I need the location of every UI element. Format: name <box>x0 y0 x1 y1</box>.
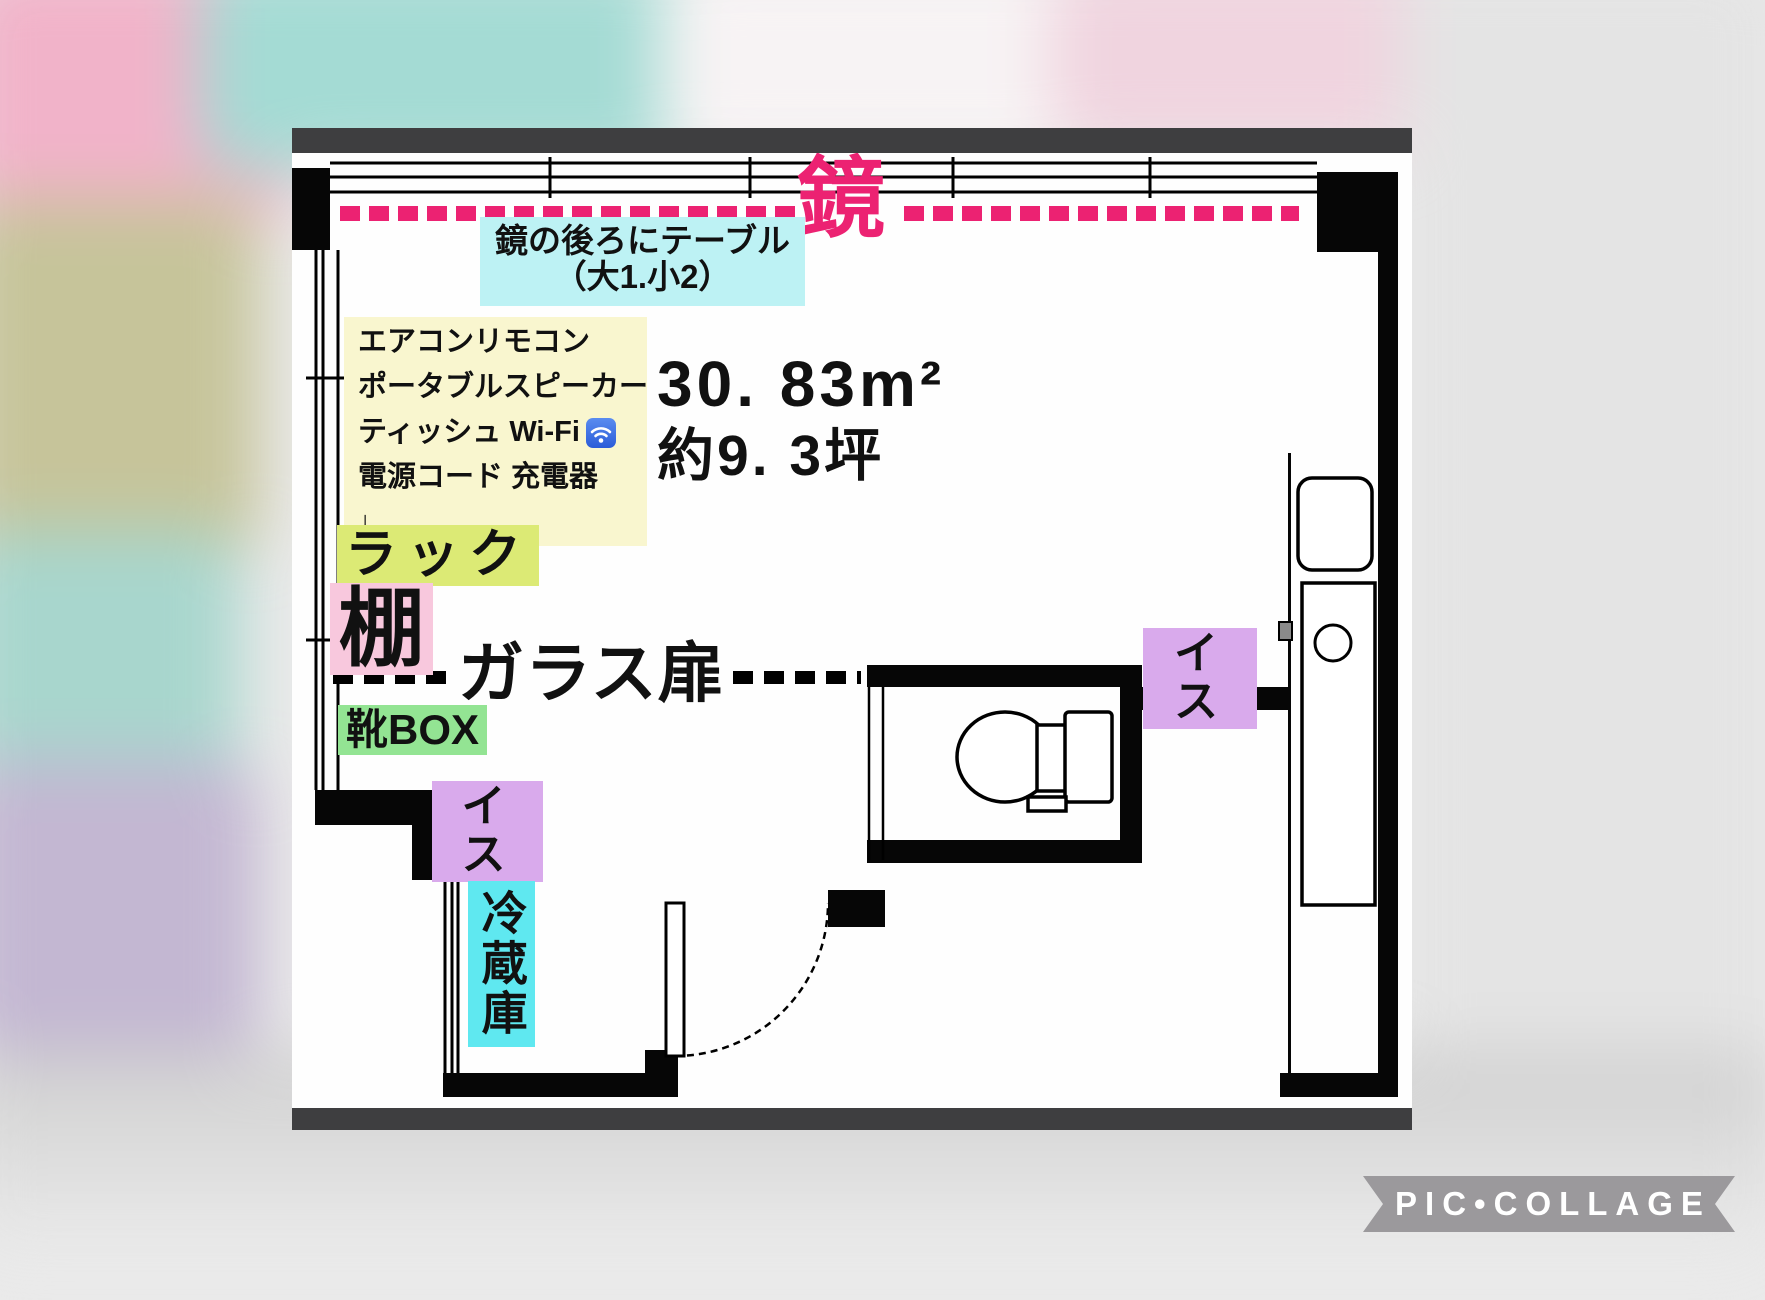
wifi-icon <box>586 418 616 448</box>
wall-top-left-corner <box>292 168 330 250</box>
mirror-note-line2: （大1.小2） <box>490 259 795 295</box>
mirror-label: 鏡 <box>797 153 885 248</box>
amenity-line: ポータブルスピーカー <box>358 372 633 404</box>
toilet-icon <box>957 712 1112 811</box>
amenity-line-wifi: ティッシュ Wi-Fi <box>358 417 580 449</box>
floorplan-photo: 鏡 鏡の後ろにテーブル （大1.小2） エアコンリモコン ポータブルスピーカー … <box>292 128 1412 1130</box>
floorplan: 鏡 鏡の後ろにテーブル （大1.小2） エアコンリモコン ポータブルスピーカー … <box>292 153 1412 1108</box>
wall-right-of-entry <box>828 890 885 927</box>
amenity-line: エアコンリモコン <box>358 327 633 359</box>
photo-frame-bottom <box>292 1108 1412 1130</box>
wall-step-horizontal <box>315 790 412 825</box>
wall-toilet-bottom <box>867 840 1142 863</box>
glass-door-dash-right <box>733 671 861 684</box>
kitchen-sink-icon <box>1298 478 1375 905</box>
bg-blob-lavender-left <box>0 760 260 1060</box>
wall-toilet-top <box>867 665 1142 687</box>
mirror-dash-right <box>904 206 1299 221</box>
wall-toilet-right <box>1120 665 1142 863</box>
wall-bottom-right <box>1280 1073 1398 1097</box>
label-shelf: 棚 <box>330 583 433 675</box>
label-fridge: 冷蔵庫 <box>468 881 535 1047</box>
mirror-note: 鏡の後ろにテーブル （大1.小2） <box>480 217 805 306</box>
bg-blob-khaki-left <box>0 200 260 560</box>
window-band-entry <box>445 880 458 1073</box>
pic-collage-watermark-text: PIC•COLLAGE <box>1387 1185 1711 1223</box>
pic-collage-watermark: PIC•COLLAGE <box>1363 1176 1735 1232</box>
photo-frame-top <box>292 128 1412 153</box>
label-glass-door: ガラス扉 <box>458 637 725 710</box>
wall-entry-bottom <box>443 1073 676 1097</box>
wall-top-right-corner <box>1317 172 1398 252</box>
label-rack: ラック <box>337 525 539 586</box>
wall-counter-edge <box>1288 453 1291 1073</box>
wall-entry-door-post <box>645 1050 678 1097</box>
toilet-door <box>869 687 883 860</box>
amenities-box: エアコンリモコン ポータブルスピーカー ティッシュ Wi-Fi 電源コード 充電… <box>344 317 647 546</box>
label-chair-left: イス <box>432 781 543 882</box>
amenity-line: 電源コード 充電器 <box>358 462 633 494</box>
bg-blob-teal-left <box>0 530 240 790</box>
wall-right <box>1378 248 1398 1097</box>
label-chair-right: イス <box>1143 628 1257 729</box>
area-tsubo: 約9. 3坪 <box>657 425 884 488</box>
amenity-line: ティッシュ Wi-Fi <box>358 417 633 449</box>
mirror-note-line1: 鏡の後ろにテーブル <box>490 223 795 259</box>
area-square-meters: 30. 83m² <box>657 349 945 419</box>
entry-door <box>666 903 828 1056</box>
label-shoe-box: 靴BOX <box>338 705 487 755</box>
